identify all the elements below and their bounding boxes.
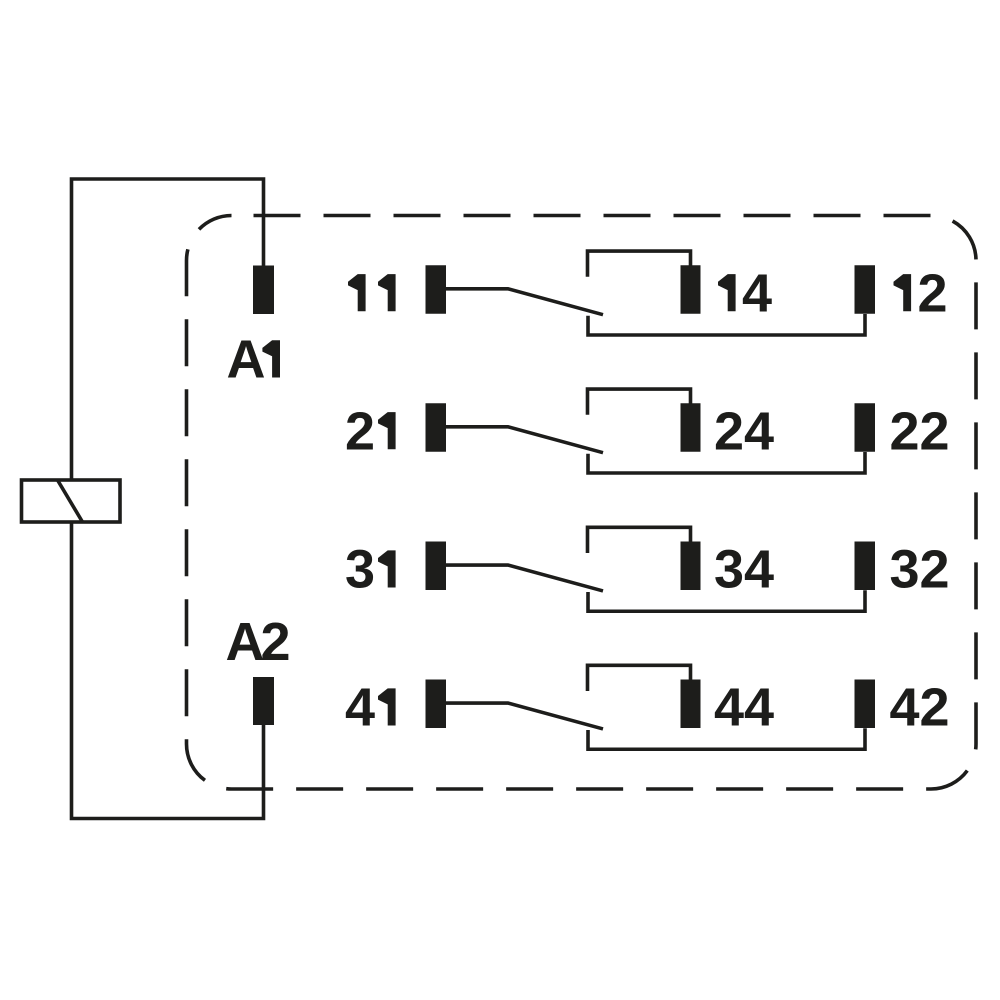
svg-text:44: 44 bbox=[714, 678, 774, 738]
svg-text:4: 4 bbox=[345, 678, 375, 738]
svg-text:3: 3 bbox=[345, 540, 375, 600]
svg-text:34: 34 bbox=[714, 540, 774, 600]
svg-text:A: A bbox=[227, 330, 266, 390]
svg-text:24: 24 bbox=[714, 401, 774, 461]
svg-text:22: 22 bbox=[890, 401, 950, 461]
svg-text:2: 2 bbox=[918, 263, 948, 323]
svg-text:2: 2 bbox=[345, 401, 375, 461]
svg-text:A: A bbox=[226, 612, 265, 672]
svg-text:32: 32 bbox=[890, 540, 950, 600]
svg-text:42: 42 bbox=[890, 678, 950, 738]
svg-text:4: 4 bbox=[742, 263, 772, 323]
svg-text:2: 2 bbox=[261, 612, 291, 672]
